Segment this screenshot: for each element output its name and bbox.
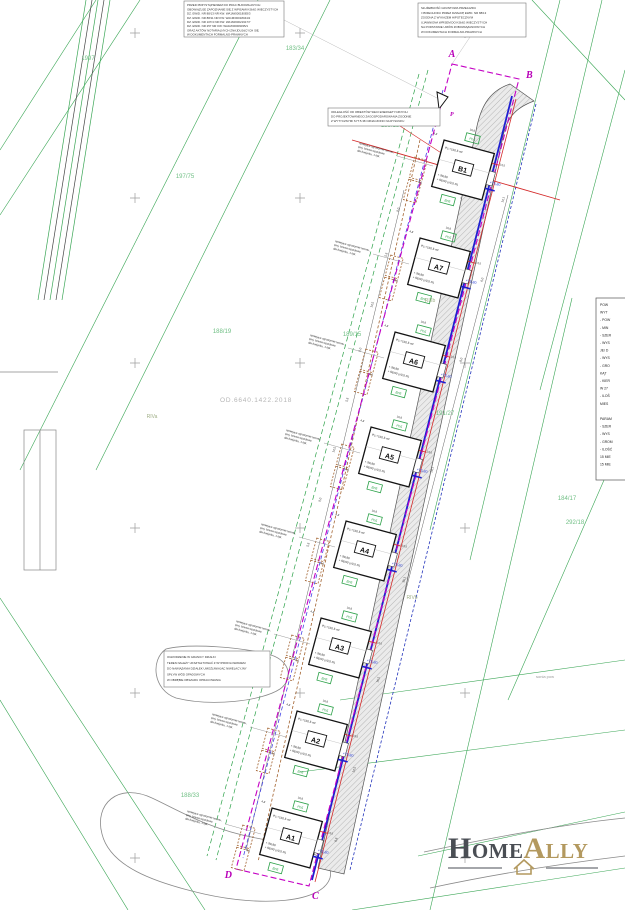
dimension-label: 4,8 [433,131,438,136]
legend-line: - GRO [600,364,610,368]
entrance-marker-p: P [450,112,454,118]
legend-line: MIES [600,402,609,406]
survey-doc-number: OD.6640.1422.2018 [220,397,292,404]
parking-space [262,728,280,752]
legend-line: - WYS [600,432,611,436]
gate-note: istniejące ogrodzenie terenu,proj. brama… [333,239,371,260]
dimension-label: 4,8 [409,229,414,234]
misc-structures [0,20,625,901]
soil-class-label: RIVb [406,595,417,601]
note-line: ZGODNA Z WYKAZEM HIPOTECZNYM [421,16,474,20]
dimension-label: 8,0 [459,357,464,363]
dimension-label: 14,5 [369,301,375,308]
corner-label-d: D [224,870,232,881]
site-plan-sheet: A B C D P Pz.=160,5 m²B1+ 99,80+ 98,50 (… [0,0,625,910]
survey-cross [130,28,140,38]
note-line: I PRZECHODU PRZEZ DZIAŁKĘ EWID. NR 88/13 [421,11,487,15]
gate-note: istniejące ogrodzenie terenu,proj. brama… [308,333,346,354]
dimension-label: 8,5 [246,848,251,853]
legend-line: 15 MIE [600,455,611,459]
dimension-label: 5,5 [345,397,350,403]
gate-note: istniejące ogrodzenie terenu,proj. brama… [357,141,395,162]
mid-note: ODLEGŁOŚĆ OD OBIEKTÓW SIECI ENERGETYCZNY… [331,109,411,123]
note-line: SŁUŻEBNOŚĆ GRUNTOWA PRZEJAZDU [421,5,476,10]
green-box-top-label: Pn5 [420,329,427,334]
legend-line: - POW [600,318,611,322]
note-line: TEREN NALEŻY UKSZTAŁTOWAĆ Z WYPROFILOWAN… [167,660,246,665]
dimension-label: 10,8 [396,414,403,419]
gate-note: istniejące ogrodzenie terenu,proj. brama… [234,619,272,640]
note-line: W DOKUMENTACH FORMALNO-PRAWNYCH [187,33,248,37]
parcel-number-label: 191/27 [436,411,455,417]
gate-note: istniejące ogrodzenie terenu,proj. brama… [185,809,223,830]
survey-cross [130,523,140,533]
dimension-label: 14,5 [331,446,337,453]
parcel-number-label: 183/34 [286,46,305,52]
survey-cross [295,688,305,698]
dimension-label: 4,8 [310,609,315,614]
legend-line: - SZER [600,425,612,429]
parcel-number-label: 292/18 [566,520,585,526]
dimension-label: 8,5 [418,180,423,185]
note-line: DO NAWIĄZANIA DZIAŁEK UMOŻLIWIAJĄC NIWEL… [167,666,247,671]
legend-line: 15 MIE [600,463,611,467]
dimension-label: 10,8 [371,508,378,513]
gate-note: istniejące ogrodzenie terenu,proj. brama… [259,522,297,543]
soil-class-label: RIVa [147,414,158,420]
legend-line: - KIER [600,379,611,383]
dimension-label: 4,8 [384,323,389,328]
parcel-number-label: 1997 [81,56,95,62]
legend-line: W 27 [600,387,608,391]
legend-line: - SZER [600,333,612,337]
dimension-label: 9,0 [358,347,363,353]
parcel-boundary-lines [0,0,625,910]
green-box-bottom-label: Bn5 [297,769,304,774]
gate-note: istniejące ogrodzenie terenu,proj. brama… [210,712,248,733]
dimension-label: 10,8 [346,605,353,610]
green-box-top-label: Pn5 [469,137,476,142]
legend-line: POW [600,303,609,307]
parcel-number-label: 184/17 [558,496,577,502]
green-box-top-label: Pn5 [396,424,403,429]
green-box-bottom-label: Bn5 [395,390,402,395]
gate-note: istniejące ogrodzenie terenu,proj. brama… [284,428,322,449]
green-box-bottom-label: Bn5 [444,198,451,203]
faint-note: sonia pow [536,674,554,679]
legend-line: - GROM [600,440,613,444]
dimension-label: 14,1 [500,196,506,203]
corner-label-c: C [312,891,319,902]
green-box-top-label: Pn5 [346,615,353,620]
survey-cross [130,853,140,863]
legend-line: - WYS [600,356,611,360]
logo-wordmark: HomeAlly [448,832,588,865]
soil-class-label: RIIIb [425,298,436,304]
survey-cross [460,688,470,698]
site-plan-drawing: A B C D P Pz.=160,5 m²B1+ 99,80+ 98,50 (… [0,0,625,910]
green-box-bottom-label: Bn5 [272,866,279,871]
dimension-label: 14,5 [499,162,506,167]
dimension-label: 8,5 [345,467,350,472]
survey-cross [295,28,305,38]
dimension-label: 8,5 [369,372,374,377]
corner-label-b: B [525,70,533,81]
corner-label-a: A [448,49,456,60]
survey-cross [130,193,140,203]
legend-line: PARAM [600,417,612,421]
parcel-number-label: 189/15 [343,332,362,338]
survey-cross [460,523,470,533]
survey-cross [295,193,305,203]
parcel-numbers: 1997183/34189/13197/75188/19189/15191/27… [81,46,585,799]
dimension-label: 10,8 [322,698,329,703]
survey-cross [130,688,140,698]
note-line: SPŁYW WÓD OPADOWYCH [167,671,205,676]
dimension-label: 14,5 [475,260,482,265]
survey-cross [130,358,140,368]
dimension-label: 8,5 [271,751,276,756]
note-line: UJAWNIONA WPISEM DO KSIĄG WIECZYSTYCH [421,20,487,24]
parcel-number-label: 188/19 [213,329,232,335]
green-box-top-label: Pn5 [371,518,378,523]
dimension-label: 8,5 [295,658,300,663]
legend-line: - ILOŚ [600,393,611,398]
dimension-label: 20,1 [429,466,435,473]
legend-line: WYT [600,311,608,315]
note-line: OGRODZENIE W GRANICY DZIAŁKI [167,655,216,659]
dimension-label: 10,8 [469,127,476,132]
green-box-top-label: Pn5 [297,805,304,810]
dimension-label: 4,8 [360,418,365,423]
legend-line: - ILOŚĆ [600,446,613,451]
note-line: DO PROJEKTOWANEGO ZAGOSPODAROWANIA ZGODN… [331,115,411,119]
note-line: W OBRĘBIE OBSZARU OPRACOWANIA [167,678,221,682]
dimension-label: 8,5 [394,278,399,283]
dimension-label: 9,0 [318,497,323,503]
green-box-bottom-label: Bn5 [346,579,353,584]
note-line: ODLEGŁOŚĆ OD OBIEKTÓW SIECI ENERGETYCZNY… [331,109,408,114]
dimension-label: 10,8 [420,319,427,324]
railway-band [38,0,110,300]
dimension-label: 4,8 [261,799,266,804]
note-line: W DOKUMENTACH FORMALNO-PRAWNYCH [421,30,482,34]
note-line: Z WYTYCZNYMI SYT.5.38 OZNACZONO NA RYSUN… [331,119,404,123]
logo-home-text: Home [448,832,524,865]
logo-ally-text: Ally [524,832,589,865]
survey-cross [295,358,305,368]
parking-space [385,255,403,279]
water-line [350,104,536,870]
dimension-label: 10,8 [297,795,304,800]
homeally-logo: HomeAlly [448,832,598,874]
legend-line: JE/ D [600,349,609,353]
green-box-bottom-label: Bn5 [321,676,328,681]
dimension-label: 10,8 [445,225,452,230]
dimension-label: 6,0 [480,277,485,283]
dimension-label: 4,8 [286,702,291,707]
parcel-number-label: 197/75 [176,174,195,180]
legend-line: KĄT [600,371,607,375]
entrance-arrow-icon [437,92,448,109]
power-line [315,99,516,882]
green-box-top-label: Pn5 [445,235,452,240]
parcel-number-label: 188/33 [181,793,200,799]
survey-cross [295,523,305,533]
legend-line: - MIN [600,326,609,330]
green-box-top-label: Pn5 [322,708,329,713]
parking-space [311,538,329,562]
note-line: NA PODSTAWIE UMÓW ZOBOWIĄZANIOWYCH [421,24,485,29]
dimension-label: 5,5 [306,542,311,548]
green-box-bottom-label: Bn5 [371,485,378,490]
legend-line: - WYS [600,341,611,345]
